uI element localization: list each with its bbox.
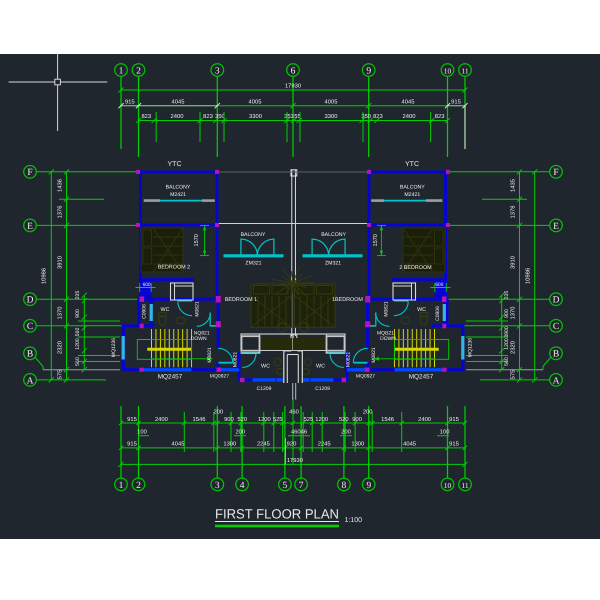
svg-text:YTC: YTC bbox=[168, 161, 182, 168]
svg-text:BALCONY: BALCONY bbox=[321, 232, 346, 238]
svg-text:A: A bbox=[27, 376, 34, 386]
svg-text:100: 100 bbox=[137, 428, 147, 435]
svg-text:WC: WC bbox=[161, 307, 170, 313]
svg-text:MQ1236: MQ1236 bbox=[468, 338, 474, 357]
svg-text:10986: 10986 bbox=[525, 268, 532, 284]
svg-text:1200: 1200 bbox=[258, 416, 271, 423]
svg-text:4045: 4045 bbox=[402, 98, 415, 105]
svg-text:17930: 17930 bbox=[287, 457, 303, 464]
svg-text:10986: 10986 bbox=[41, 268, 48, 284]
svg-text:BALCONY: BALCONY bbox=[166, 185, 191, 191]
svg-text:460: 460 bbox=[289, 409, 299, 416]
svg-text:1: 1 bbox=[119, 481, 124, 491]
svg-text:200: 200 bbox=[341, 428, 351, 435]
svg-text:6: 6 bbox=[291, 66, 296, 76]
svg-text:11: 11 bbox=[461, 66, 468, 75]
svg-text:235: 235 bbox=[504, 291, 510, 300]
svg-text:C: C bbox=[27, 322, 33, 332]
svg-text:1570: 1570 bbox=[194, 234, 200, 246]
svg-text:WC: WC bbox=[417, 307, 426, 313]
svg-text:2 BEDROOM: 2 BEDROOM bbox=[399, 265, 432, 271]
svg-text:3900: 3900 bbox=[504, 326, 510, 338]
svg-text:YTC: YTC bbox=[405, 161, 419, 168]
svg-text:M0821: M0821 bbox=[384, 301, 390, 317]
svg-text:1: 1 bbox=[119, 66, 124, 76]
svg-text:4005: 4005 bbox=[249, 98, 262, 105]
svg-text:ZM321: ZM321 bbox=[325, 261, 341, 267]
svg-text:BEDROOM 2: BEDROOM 2 bbox=[158, 265, 190, 271]
svg-text:ZM321: ZM321 bbox=[245, 261, 261, 267]
svg-text:200: 200 bbox=[363, 409, 373, 416]
svg-text:4045: 4045 bbox=[172, 441, 185, 448]
svg-text:D: D bbox=[27, 296, 34, 306]
svg-text:DOWN: DOWN bbox=[380, 336, 396, 342]
svg-text:1436: 1436 bbox=[56, 179, 63, 192]
svg-text:MQ0927: MQ0927 bbox=[210, 373, 229, 379]
svg-text:525: 525 bbox=[304, 416, 314, 423]
svg-text:4: 4 bbox=[240, 481, 245, 491]
svg-text:100: 100 bbox=[440, 428, 450, 435]
svg-text:1300: 1300 bbox=[351, 441, 364, 448]
svg-text:200: 200 bbox=[213, 409, 223, 416]
svg-text:46046: 46046 bbox=[291, 428, 307, 435]
svg-text:3910: 3910 bbox=[56, 256, 63, 269]
svg-text:5: 5 bbox=[283, 481, 288, 491]
svg-text:FIRST FLOOR PLAN: FIRST FLOOR PLAN bbox=[215, 507, 339, 522]
svg-text:2320: 2320 bbox=[56, 341, 63, 354]
svg-text:520: 520 bbox=[237, 416, 247, 423]
svg-text:525: 525 bbox=[273, 416, 283, 423]
svg-text:1435: 1435 bbox=[509, 179, 516, 192]
svg-text:900: 900 bbox=[224, 416, 234, 423]
svg-text:575: 575 bbox=[57, 370, 63, 380]
svg-text:B: B bbox=[27, 350, 33, 360]
svg-text:353: 353 bbox=[284, 113, 294, 120]
svg-text:10: 10 bbox=[444, 66, 452, 75]
svg-text:MQ0927: MQ0927 bbox=[356, 373, 375, 379]
svg-text:823: 823 bbox=[435, 113, 445, 120]
svg-text:560: 560 bbox=[75, 328, 81, 337]
svg-text:7: 7 bbox=[299, 481, 304, 491]
svg-text:E: E bbox=[27, 222, 33, 232]
svg-text:2: 2 bbox=[136, 66, 141, 76]
svg-text:900: 900 bbox=[352, 416, 362, 423]
svg-text:920: 920 bbox=[287, 441, 297, 448]
svg-text:4005: 4005 bbox=[325, 98, 338, 105]
svg-text:F: F bbox=[553, 168, 558, 178]
svg-text:3910: 3910 bbox=[509, 256, 516, 269]
svg-text:823: 823 bbox=[373, 113, 383, 120]
svg-text:C0906: C0906 bbox=[435, 306, 441, 321]
svg-text:823: 823 bbox=[141, 113, 151, 120]
svg-text:3300: 3300 bbox=[249, 113, 262, 120]
svg-text:1200: 1200 bbox=[75, 338, 81, 350]
svg-text:600: 600 bbox=[143, 282, 151, 288]
svg-text:3300: 3300 bbox=[325, 113, 338, 120]
svg-text:2320: 2320 bbox=[509, 341, 516, 354]
svg-text:MQ1236: MQ1236 bbox=[111, 338, 117, 357]
svg-text:1546: 1546 bbox=[381, 416, 394, 423]
svg-text:BALCONY: BALCONY bbox=[241, 232, 266, 238]
svg-text:M0821: M0821 bbox=[371, 347, 377, 363]
svg-text:520: 520 bbox=[339, 416, 349, 423]
svg-text:1546: 1546 bbox=[193, 416, 206, 423]
svg-text:M0821: M0821 bbox=[207, 347, 213, 363]
svg-text:C1209: C1209 bbox=[315, 386, 330, 392]
svg-text:4045: 4045 bbox=[172, 98, 185, 105]
svg-text:1376: 1376 bbox=[56, 206, 63, 219]
svg-text:2400: 2400 bbox=[171, 113, 184, 120]
svg-text:BALCONY: BALCONY bbox=[400, 185, 425, 191]
svg-text:915: 915 bbox=[125, 98, 135, 105]
svg-text:M0821: M0821 bbox=[195, 301, 201, 317]
svg-text:DOWN: DOWN bbox=[191, 336, 207, 342]
svg-text:1200: 1200 bbox=[315, 416, 328, 423]
svg-text:575: 575 bbox=[510, 370, 516, 380]
svg-text:1300: 1300 bbox=[223, 441, 236, 448]
svg-text:E: E bbox=[553, 222, 559, 232]
svg-text:9: 9 bbox=[366, 481, 371, 491]
svg-text:823: 823 bbox=[203, 113, 213, 120]
svg-text:915: 915 bbox=[451, 98, 461, 105]
svg-text:560: 560 bbox=[504, 357, 510, 366]
svg-text:WC: WC bbox=[316, 364, 325, 370]
svg-text:1:100: 1:100 bbox=[345, 517, 363, 524]
svg-text:560: 560 bbox=[75, 357, 81, 366]
svg-text:2400: 2400 bbox=[403, 113, 416, 120]
svg-text:C: C bbox=[553, 322, 559, 332]
svg-text:A: A bbox=[553, 376, 560, 386]
svg-text:235: 235 bbox=[75, 291, 81, 300]
svg-text:C0906: C0906 bbox=[142, 304, 148, 319]
svg-text:900: 900 bbox=[504, 309, 510, 318]
svg-text:1BEDROOM: 1BEDROOM bbox=[332, 297, 363, 303]
svg-text:3: 3 bbox=[215, 66, 220, 76]
svg-text:M0821: M0821 bbox=[232, 352, 238, 368]
svg-text:8: 8 bbox=[342, 481, 347, 491]
svg-text:B: B bbox=[553, 350, 559, 360]
svg-text:915: 915 bbox=[449, 416, 459, 423]
svg-text:M2421: M2421 bbox=[170, 192, 186, 198]
svg-text:1378: 1378 bbox=[509, 206, 516, 219]
svg-text:1200: 1200 bbox=[504, 338, 510, 350]
svg-text:BEDROOM 1: BEDROOM 1 bbox=[225, 297, 257, 303]
svg-text:M2421: M2421 bbox=[404, 192, 420, 198]
svg-text:350: 350 bbox=[215, 113, 225, 120]
svg-text:2400: 2400 bbox=[418, 416, 431, 423]
svg-text:2400: 2400 bbox=[155, 416, 168, 423]
svg-text:F: F bbox=[27, 168, 32, 178]
svg-text:1370: 1370 bbox=[56, 307, 63, 320]
svg-text:4045: 4045 bbox=[403, 441, 416, 448]
svg-text:MQ2457: MQ2457 bbox=[158, 374, 183, 381]
svg-text:M0821: M0821 bbox=[346, 352, 352, 368]
svg-text:915: 915 bbox=[127, 416, 137, 423]
svg-text:9: 9 bbox=[366, 66, 371, 76]
svg-text:C1209: C1209 bbox=[257, 386, 272, 392]
svg-text:1570: 1570 bbox=[373, 234, 379, 246]
svg-text:MQ2457: MQ2457 bbox=[409, 374, 434, 381]
svg-text:2245: 2245 bbox=[257, 441, 270, 448]
svg-text:2245: 2245 bbox=[318, 441, 331, 448]
svg-text:1370: 1370 bbox=[509, 307, 516, 320]
svg-text:600: 600 bbox=[435, 282, 443, 288]
svg-text:200: 200 bbox=[235, 428, 245, 435]
svg-text:11: 11 bbox=[461, 481, 468, 490]
svg-text:915: 915 bbox=[127, 441, 137, 448]
svg-text:WC: WC bbox=[261, 364, 270, 370]
svg-text:2: 2 bbox=[136, 481, 141, 491]
svg-text:3: 3 bbox=[215, 481, 220, 491]
svg-text:D: D bbox=[553, 296, 560, 306]
svg-text:10: 10 bbox=[444, 481, 452, 490]
svg-text:17930: 17930 bbox=[285, 83, 301, 90]
svg-text:900: 900 bbox=[75, 309, 81, 318]
svg-text:915: 915 bbox=[449, 441, 459, 448]
